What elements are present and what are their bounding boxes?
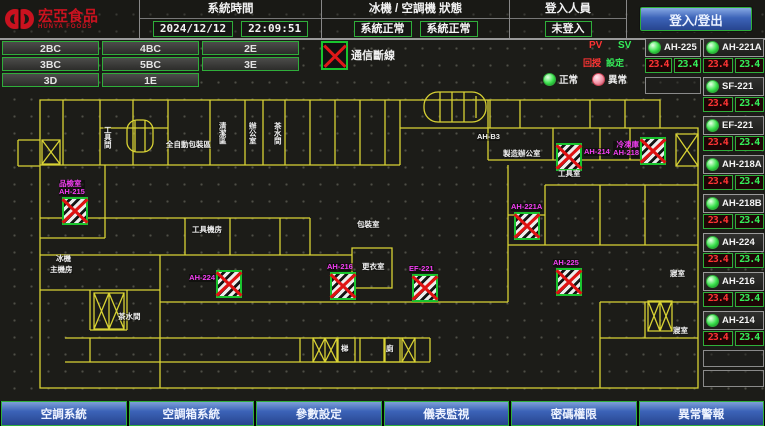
panel-unit[interactable]: AH-218B 23.4 23.4 (703, 194, 764, 229)
floor-button[interactable]: 5BC (102, 57, 199, 71)
plan-unit-label: AH-216 (327, 263, 353, 271)
room-label: 廁 (386, 345, 394, 353)
panel-empty-cell (703, 350, 764, 367)
unit-led-icon (706, 314, 719, 327)
hvac-scada-screen: 宏亞食品 HUNYA FOODS 系統時間 2024/12/12 22:09:5… (0, 0, 765, 426)
login-button-section: 登入/登出 (627, 0, 765, 38)
plan-unit-label: AH-214 (584, 148, 610, 156)
panel-empty-cell (645, 77, 701, 94)
unit-sv-value: 23.4 (735, 175, 765, 190)
login-section: 登入人員 未登入 (510, 0, 627, 38)
nav-button[interactable]: 儀表監視 (384, 401, 510, 426)
panel-unit[interactable]: SF-221 23.4 23.4 (703, 77, 764, 112)
room-label: 辦公室 (248, 122, 256, 145)
nav-button[interactable]: 參數設定 (256, 401, 382, 426)
panel-unit[interactable]: AH-214 23.4 23.4 (703, 311, 764, 346)
plan-unit[interactable]: EF-221 (412, 274, 438, 302)
floor-button[interactable]: 2E (202, 41, 299, 55)
plan-unit-label: AH-225 (553, 259, 579, 267)
plan-unit-name: AH-216 (327, 263, 353, 271)
plan-unit[interactable]: 品檢室 AH-215 (62, 197, 88, 225)
unit-led-icon (706, 41, 719, 54)
legend-normal: 正常 (543, 72, 578, 86)
system-clock-value: 22:09:51 (241, 21, 308, 37)
panel-column-right: AH-221A 23.4 23.4 SF-221 23.4 23.4 (703, 38, 764, 390)
unit-sv-value: 23.4 (735, 58, 765, 73)
room-label: 寢室 (673, 327, 688, 335)
panel-empty-cell (703, 370, 764, 387)
panel-unit-AH-225[interactable]: AH-225 23.4 23.4 (645, 38, 701, 73)
unit-led-icon (706, 197, 719, 210)
sv-label: 設定 (606, 56, 624, 69)
floor-button[interactable]: 3E (202, 57, 299, 71)
room-label: AH-B3 (477, 133, 500, 141)
floor-button[interactable]: 4BC (102, 41, 199, 55)
panel-unit[interactable]: AH-224 23.4 23.4 (703, 233, 764, 268)
panel-unit[interactable]: EF-221 23.4 23.4 (703, 116, 764, 151)
login-logout-button[interactable]: 登入/登出 (640, 7, 752, 31)
plan-unit[interactable]: 冷凍庫 AH-218 (640, 137, 666, 165)
room-label: 寢室 (670, 270, 685, 278)
header-bar: 宏亞食品 HUNYA FOODS 系統時間 2024/12/12 22:09:5… (0, 0, 765, 40)
system-date-value: 2024/12/12 (153, 21, 233, 37)
login-label: 登入人員 (510, 0, 626, 19)
comm-lost-unit-icon (514, 212, 540, 240)
plan-unit-name: AH-225 (553, 259, 579, 267)
comm-lost-legend-icon (321, 41, 348, 70)
plan-unit-label: AH-221A (511, 203, 542, 211)
plan-unit-name: EF-221 (409, 265, 434, 273)
comm-lost-unit-icon (216, 270, 242, 298)
unit-sv-value: 23.4 (674, 58, 701, 73)
plan-unit-label: 品檢室 AH-215 (59, 180, 85, 197)
nav-button[interactable]: 密碼權限 (511, 401, 637, 426)
unit-name: AH-214 (722, 315, 755, 326)
pv-label: 回授 (583, 56, 601, 69)
room-label: 梯 (341, 345, 349, 353)
unit-pv-value: 23.4 (703, 136, 733, 151)
unit-led-icon (706, 236, 719, 249)
unit-pv-value: 23.4 (703, 253, 733, 268)
room-label: 工具間 (103, 126, 111, 149)
comm-lost-unit-icon (556, 268, 582, 296)
room-label: 工具機房 (192, 226, 222, 234)
machine-status-section: 冰機 / 空調機 狀態 系統正常 系統正常 (322, 0, 510, 38)
room-label: 茶水間 (273, 122, 281, 145)
unit-pv-value: 23.4 (703, 58, 733, 73)
plan-unit-name: AH-218 (613, 149, 639, 157)
company-logo: 宏亞食品 HUNYA FOODS (0, 0, 140, 38)
unit-name: AH-218B (722, 198, 762, 209)
plan-unit-label: 冷凍庫 AH-218 (613, 141, 639, 158)
comm-lost-unit-icon (412, 274, 438, 302)
plan-unit-label: AH-224 (189, 274, 215, 282)
comm-lost-unit-icon (62, 197, 88, 225)
unit-name: SF-221 (722, 81, 753, 92)
ahu-status-value: 系統正常 (420, 21, 478, 37)
abnormal-led-icon (592, 73, 605, 86)
comm-lost-unit-icon (640, 137, 666, 165)
abnormal-label: 異常 (608, 72, 627, 86)
unit-name: AH-225 (664, 42, 697, 53)
normal-label: 正常 (559, 72, 578, 86)
panel-unit[interactable]: AH-218A 23.4 23.4 (703, 155, 764, 190)
plan-unit[interactable]: AH-214 (556, 143, 582, 171)
nav-button[interactable]: 異常警報 (639, 401, 765, 426)
logo-text: 宏亞食品 (38, 9, 98, 24)
system-time-section: 系統時間 2024/12/12 22:09:51 (140, 0, 322, 38)
unit-name: AH-221A (722, 42, 762, 53)
plan-unit[interactable]: AH-216 (330, 272, 356, 300)
plan-unit[interactable]: AH-225 (556, 268, 582, 296)
machine-status-label: 冰機 / 空調機 狀態 (322, 0, 509, 19)
floor-button[interactable]: 1E (102, 73, 199, 87)
floor-button[interactable]: 2BC (2, 41, 99, 55)
plan-unit[interactable]: AH-224 (216, 270, 242, 298)
floor-button[interactable]: 3D (2, 73, 99, 87)
unit-led-icon (706, 80, 719, 93)
comm-lost-unit-icon (330, 272, 356, 300)
floor-selector: 2BC4BC2E3BC5BC3E3D1E (2, 40, 314, 88)
room-label: 工具室 (558, 170, 581, 178)
sv-header: SV (618, 40, 631, 51)
unit-led-icon (648, 41, 661, 54)
login-status-value: 未登入 (545, 21, 592, 37)
plan-unit-name: AH-214 (584, 148, 610, 156)
room-label: 更衣室 (362, 263, 385, 271)
bottom-nav: 空調系統空調箱系統參數設定儀表監視密碼權限異常警報 (0, 401, 765, 426)
unit-led-icon (706, 275, 719, 288)
plan-unit-name: AH-221A (511, 203, 542, 211)
panel-column-left: AH-225 23.4 23.4 (645, 38, 701, 97)
unit-pv-value: 23.4 (703, 175, 733, 190)
unit-led-icon (706, 158, 719, 171)
unit-sv-value: 23.4 (735, 136, 765, 151)
plan-unit-name: AH-215 (59, 188, 85, 196)
room-label: 冰機 (56, 255, 71, 263)
unit-name: EF-221 (722, 120, 753, 131)
logo-mark-icon (4, 6, 34, 32)
plan-unit[interactable]: AH-221A (514, 212, 540, 240)
room-label: 包裝室 (357, 221, 380, 229)
unit-sv-value: 23.4 (735, 214, 765, 229)
unit-sv-value: 23.4 (735, 253, 765, 268)
comm-lost-unit-icon (556, 143, 582, 171)
nav-button[interactable]: 空調系統 (1, 401, 127, 426)
unit-pv-value: 23.4 (703, 97, 733, 112)
nav-button[interactable]: 空調箱系統 (129, 401, 255, 426)
unit-name: AH-224 (722, 237, 755, 248)
unit-pv-value: 23.4 (645, 58, 672, 73)
unit-sv-value: 23.4 (735, 292, 765, 307)
floor-button[interactable]: 3BC (2, 57, 99, 71)
unit-pv-value: 23.4 (703, 292, 733, 307)
room-label: 茶水間 (118, 313, 141, 321)
normal-led-icon (543, 73, 556, 86)
unit-pv-value: 23.4 (703, 214, 733, 229)
unit-pv-value: 23.4 (703, 331, 733, 346)
unit-name: AH-216 (722, 276, 755, 287)
plan-unit-label: EF-221 (409, 265, 434, 273)
room-label: 主機房 (50, 266, 73, 274)
room-label: 全自動包裝區 (166, 141, 211, 149)
pv-header: PV (589, 40, 602, 51)
panel-unit[interactable]: AH-216 23.4 23.4 (703, 272, 764, 307)
chiller-status-value: 系統正常 (354, 21, 412, 37)
room-label: 製造辦公室 (503, 150, 541, 158)
panel-unit[interactable]: AH-221A 23.4 23.4 (703, 38, 764, 73)
logo-subtext: HUNYA FOODS (38, 24, 98, 30)
room-label: 清潔區 (218, 122, 226, 145)
unit-led-icon (706, 119, 719, 132)
plan-unit-name: AH-224 (189, 274, 215, 282)
unit-name: AH-218A (722, 159, 762, 170)
unit-sv-value: 23.4 (735, 331, 765, 346)
unit-sv-value: 23.4 (735, 97, 765, 112)
legend-abnormal: 異常 (592, 72, 627, 86)
system-time-label: 系統時間 (140, 0, 321, 19)
comm-lost-legend-label: 通信斷線 (351, 47, 395, 63)
